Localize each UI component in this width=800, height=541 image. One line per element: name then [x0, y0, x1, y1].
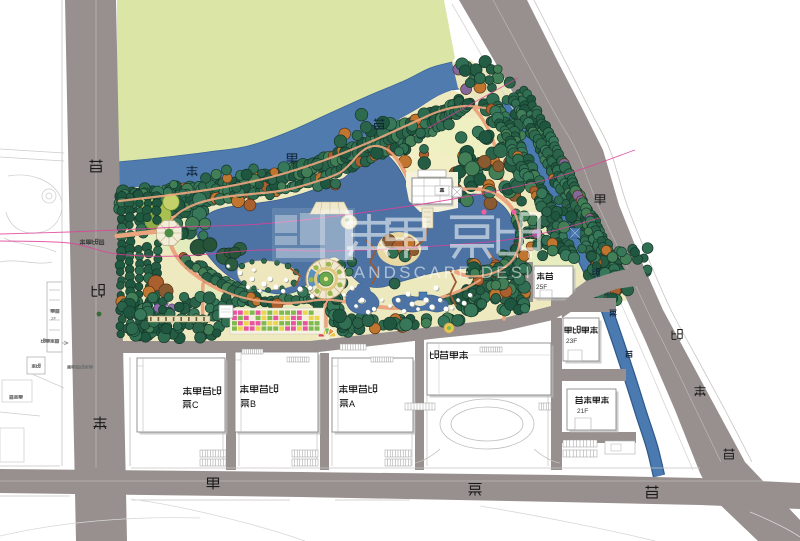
svg-text:2F: 2F: [51, 316, 57, 321]
svg-text:B: B: [250, 399, 256, 409]
svg-text:23F: 23F: [566, 338, 577, 345]
svg-text:21F: 21F: [577, 408, 588, 415]
svg-text:LANDSCAPE DESIGN: LANDSCAPE DESIGN: [341, 263, 565, 282]
svg-text:A: A: [349, 399, 355, 409]
svg-text:25F: 25F: [536, 284, 547, 291]
svg-text:C: C: [192, 400, 199, 410]
